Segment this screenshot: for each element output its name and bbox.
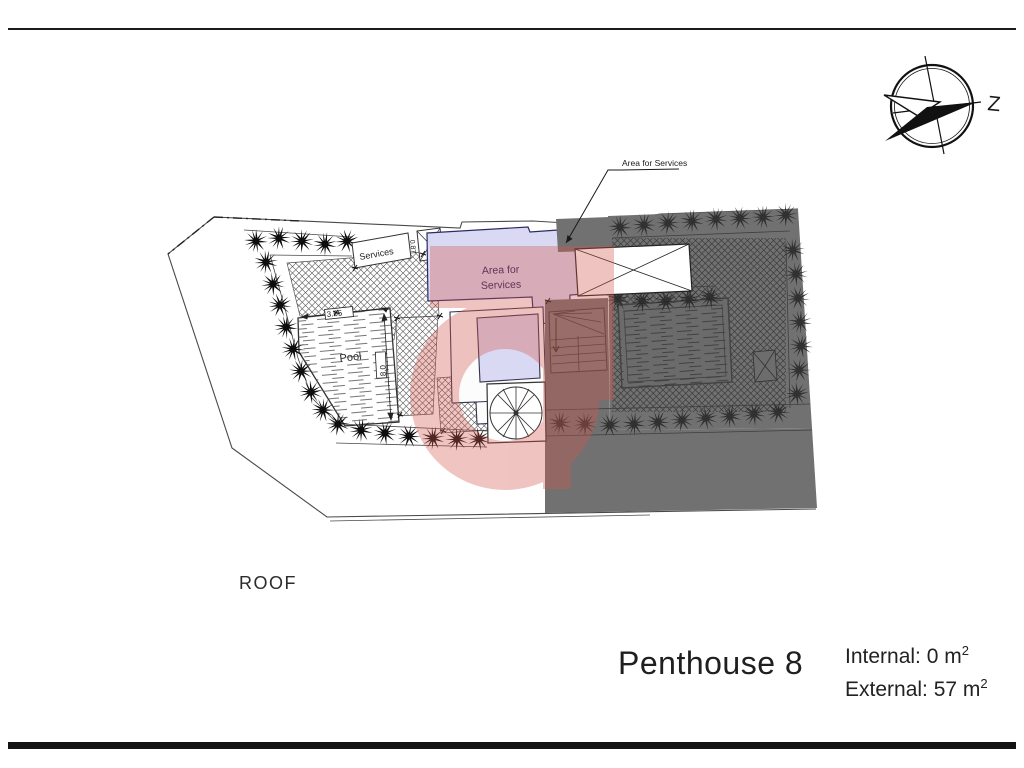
dim-pool-width: 3.65 xyxy=(326,308,343,319)
internal-area: Internal: 0 m2 xyxy=(845,643,969,669)
bottom-border-rule xyxy=(8,742,1016,749)
callout-text: Area for Services xyxy=(622,158,687,168)
external-area-sup: 2 xyxy=(980,676,987,691)
unit-name: Penthouse 8 xyxy=(618,645,803,682)
internal-area-sup: 2 xyxy=(962,643,969,658)
north-compass: Z xyxy=(884,56,1002,154)
dim-services: 0.87 xyxy=(408,239,416,253)
external-area-text: External: 57 m xyxy=(845,678,980,701)
dim-pool-length: 8.0 xyxy=(378,364,388,376)
floor-label: ROOF xyxy=(239,573,297,594)
internal-area-text: Internal: 0 m xyxy=(845,645,962,668)
drawing-sheet: Pool 3.65 8.0 xyxy=(0,0,1024,768)
external-area: External: 57 m2 xyxy=(845,676,988,702)
north-label: Z xyxy=(986,92,1001,116)
